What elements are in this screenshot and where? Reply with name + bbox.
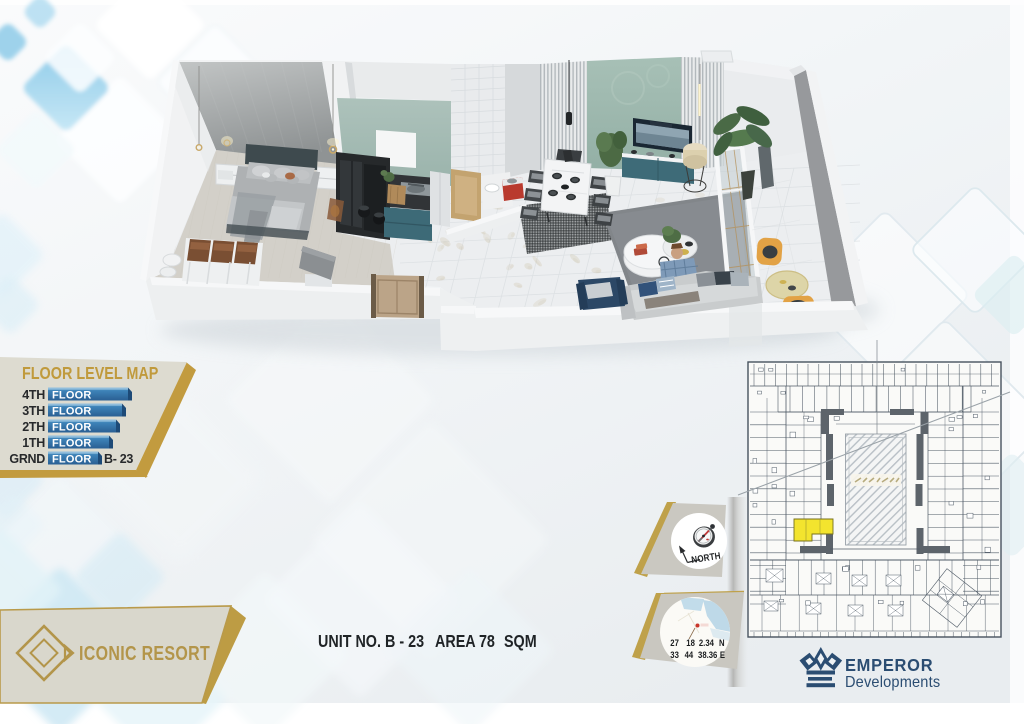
- svg-text:2TH: 2TH: [22, 420, 45, 434]
- svg-text:18: 18: [686, 637, 695, 648]
- svg-text:78: 78: [479, 633, 495, 652]
- svg-text:38.36: 38.36: [698, 649, 718, 660]
- svg-text:FLOOR: FLOOR: [52, 454, 92, 466]
- svg-text:N: N: [719, 637, 725, 648]
- svg-text:SQM: SQM: [504, 633, 537, 652]
- svg-text:FLOOR: FLOOR: [52, 438, 92, 450]
- svg-text:1TH: 1TH: [22, 436, 45, 450]
- svg-text:FLOOR: FLOOR: [52, 406, 92, 418]
- svg-text:FLOOR LEVEL MAP: FLOOR LEVEL MAP: [22, 364, 159, 384]
- svg-text:27: 27: [670, 637, 679, 648]
- svg-text:4TH: 4TH: [22, 388, 45, 402]
- svg-text:33: 33: [670, 649, 679, 660]
- svg-text:EMPEROR: EMPEROR: [845, 656, 933, 676]
- svg-text:B - 23: B - 23: [385, 633, 424, 652]
- svg-text:UNIT NO.: UNIT NO.: [318, 633, 381, 652]
- svg-text:3TH: 3TH: [22, 404, 45, 418]
- svg-text:2.34: 2.34: [699, 637, 714, 648]
- svg-text:FLOOR: FLOOR: [52, 422, 92, 434]
- svg-text:B- 23: B- 23: [104, 452, 133, 466]
- svg-text:44: 44: [685, 649, 694, 660]
- svg-text:AREA: AREA: [435, 633, 476, 652]
- svg-text:E: E: [720, 649, 725, 660]
- svg-text:ICONIC RESORT: ICONIC RESORT: [79, 641, 210, 664]
- svg-text:GRND: GRND: [9, 452, 45, 466]
- svg-text:Developments: Developments: [845, 674, 940, 692]
- svg-text:FLOOR: FLOOR: [52, 390, 92, 402]
